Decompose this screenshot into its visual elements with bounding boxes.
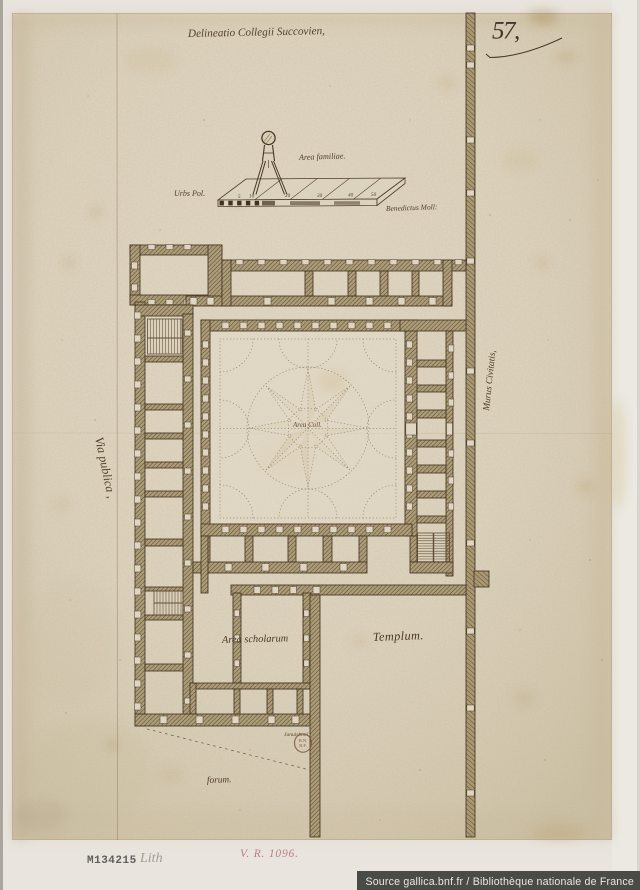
svg-text:M134215: M134215 [87,855,137,867]
svg-text:Urbs Pol.: Urbs Pol. [174,189,205,198]
svg-text:50: 50 [371,192,377,198]
svg-text:30: 30 [317,193,323,199]
svg-text:R.F.: R.F. [299,743,306,748]
svg-text:20: 20 [285,193,291,199]
svg-text:40: 40 [348,191,354,198]
svg-text:V. R. 1096.: V. R. 1096. [240,848,299,860]
svg-text:Benedictus Moll:: Benedictus Moll: [386,202,438,213]
svg-text:Templum.: Templum. [373,628,424,644]
svg-text:10: 10 [249,194,255,200]
svg-text:57,: 57, [492,18,519,45]
svg-text:Area scholarum: Area scholarum [221,633,289,646]
svg-text:5: 5 [238,194,241,200]
svg-text:Area familiae.: Area familiae. [298,151,346,162]
svg-text:Lith: Lith [139,851,163,866]
svg-text:forum.: forum. [207,774,232,786]
svg-text:Source gallica.bnf.fr / Biblio: Source gallica.bnf.fr / Bibliothèque nat… [365,876,634,888]
svg-text:Area Coll.: Area Coll. [292,421,322,429]
